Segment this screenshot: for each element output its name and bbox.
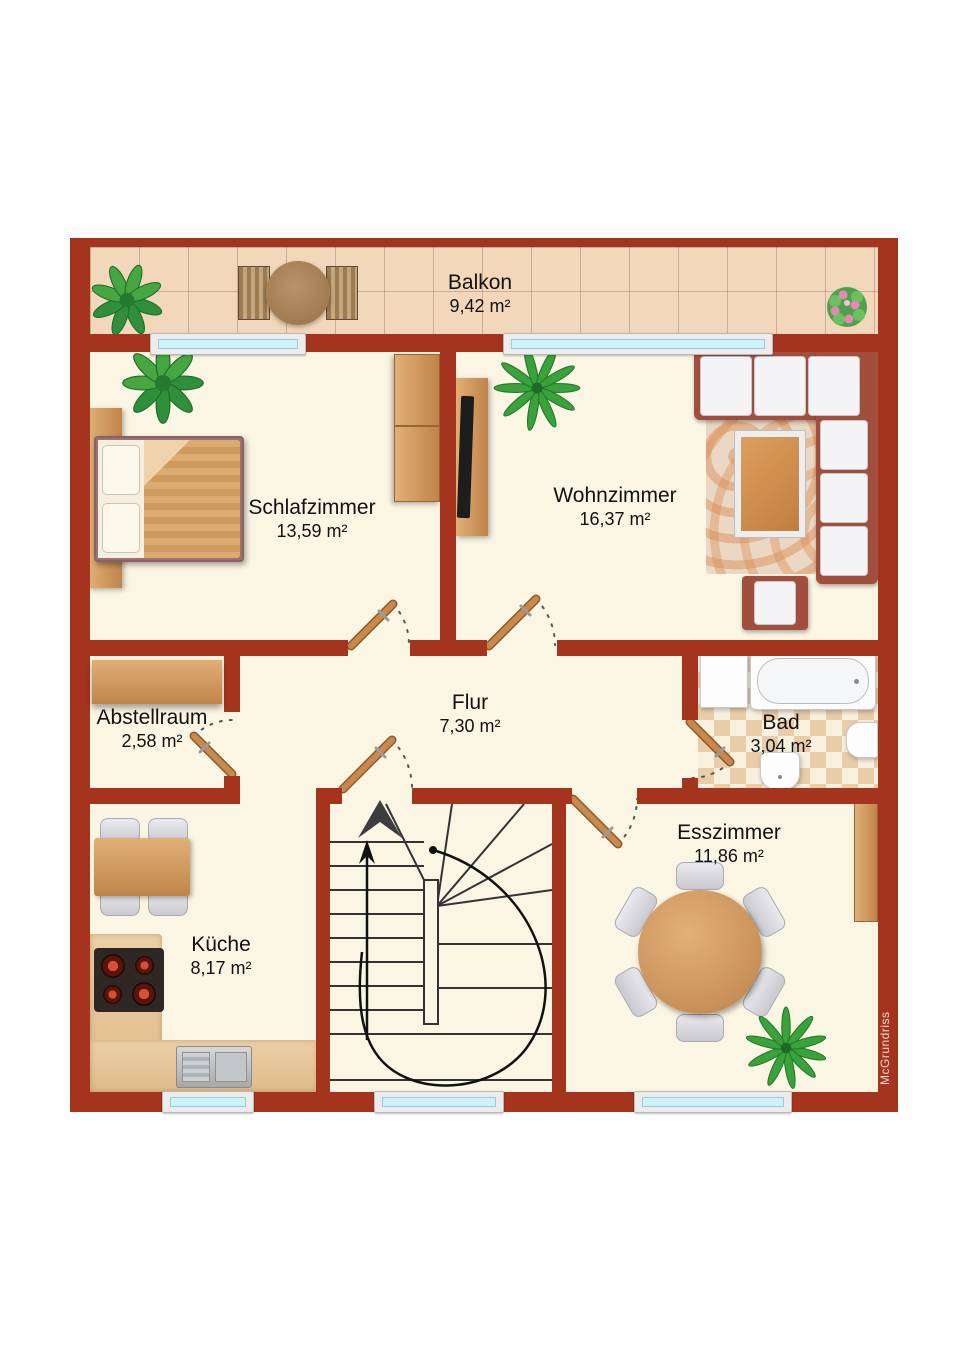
flower-plant-icon: [827, 287, 867, 327]
wall-flur-bottom: [90, 788, 240, 804]
room-label-flur: Flur 7,30 m²: [395, 690, 545, 737]
room-label-kueche: Küche 8,17 m²: [146, 932, 296, 979]
room-area: 16,37 m²: [515, 508, 715, 530]
room-area: 13,59 m²: [212, 520, 412, 542]
storage-shelf: [92, 660, 222, 704]
room-area: 9,42 m²: [380, 295, 580, 317]
door-esszimmer: [573, 799, 637, 844]
room-area: 8,17 m²: [146, 957, 296, 979]
wall-bad-left: [682, 656, 698, 720]
wall-staircase-right: [552, 788, 566, 1092]
room-area: 2,58 m²: [77, 730, 227, 752]
room-label-wohnzimmer: Wohnzimmer 16,37 m²: [515, 483, 715, 530]
window-esszimmer: [634, 1091, 792, 1113]
room-name: Bad: [721, 710, 841, 735]
room-name: Küche: [146, 932, 296, 957]
room-name: Abstellraum: [77, 705, 227, 730]
window-glass: [382, 1097, 496, 1107]
room-label-schlafzimmer: Schlafzimmer 13,59 m²: [212, 495, 412, 542]
room-name: Balkon: [380, 270, 580, 295]
door-treppenhaus: [343, 740, 412, 789]
floor-plan: Balkon 9,42 m² Schlafzimmer 13,59 m² Woh…: [0, 0, 960, 1358]
room-area: 11,86 m²: [629, 845, 829, 867]
window-treppenhaus: [374, 1091, 504, 1113]
wall-schlafzimmer-wohnzimmer: [440, 352, 456, 640]
wall-flur-top: [90, 640, 348, 656]
wall-outer-left: [70, 238, 90, 1112]
room-label-esszimmer: Esszimmer 11,86 m²: [629, 820, 829, 867]
window-glass: [511, 339, 765, 349]
room-area: 7,30 m²: [395, 715, 545, 737]
window-glass: [158, 339, 298, 349]
window-glass: [642, 1097, 784, 1107]
staircase: [330, 804, 552, 1080]
window-kueche: [162, 1091, 254, 1113]
room-name: Wohnzimmer: [515, 483, 715, 508]
wall-flur-bottom: [637, 788, 878, 804]
room-name: Schlafzimmer: [212, 495, 412, 520]
watermark: McGrundriss: [878, 1000, 898, 1096]
wall-flur-bottom: [412, 788, 572, 804]
room-label-balkon: Balkon 9,42 m²: [380, 270, 580, 317]
window-wohnzimmer: [503, 333, 773, 355]
wall-outer-right: [878, 238, 898, 1112]
wall-bad-left: [682, 778, 698, 790]
wall-flur-top: [557, 640, 878, 656]
palm-plant-icon: [736, 998, 836, 1098]
window-glass: [170, 1097, 246, 1107]
palm-plant-icon: [494, 345, 580, 431]
door-schlafzimmer: [351, 604, 409, 646]
room-name: Flur: [395, 690, 545, 715]
wall-staircase-left: [316, 788, 330, 1092]
room-name: Esszimmer: [629, 820, 829, 845]
wall-abstellraum: [224, 656, 240, 712]
stair-up-chevron: [358, 800, 402, 838]
room-area: 3,04 m²: [721, 735, 841, 757]
room-label-abstellraum: Abstellraum 2,58 m²: [77, 705, 227, 752]
wall-flur-top: [410, 640, 487, 656]
window-schlafzimmer: [150, 333, 306, 355]
room-label-bad: Bad 3,04 m²: [721, 710, 841, 757]
door-wohnzimmer: [489, 599, 555, 646]
wall-balcony-railing: [70, 238, 898, 247]
